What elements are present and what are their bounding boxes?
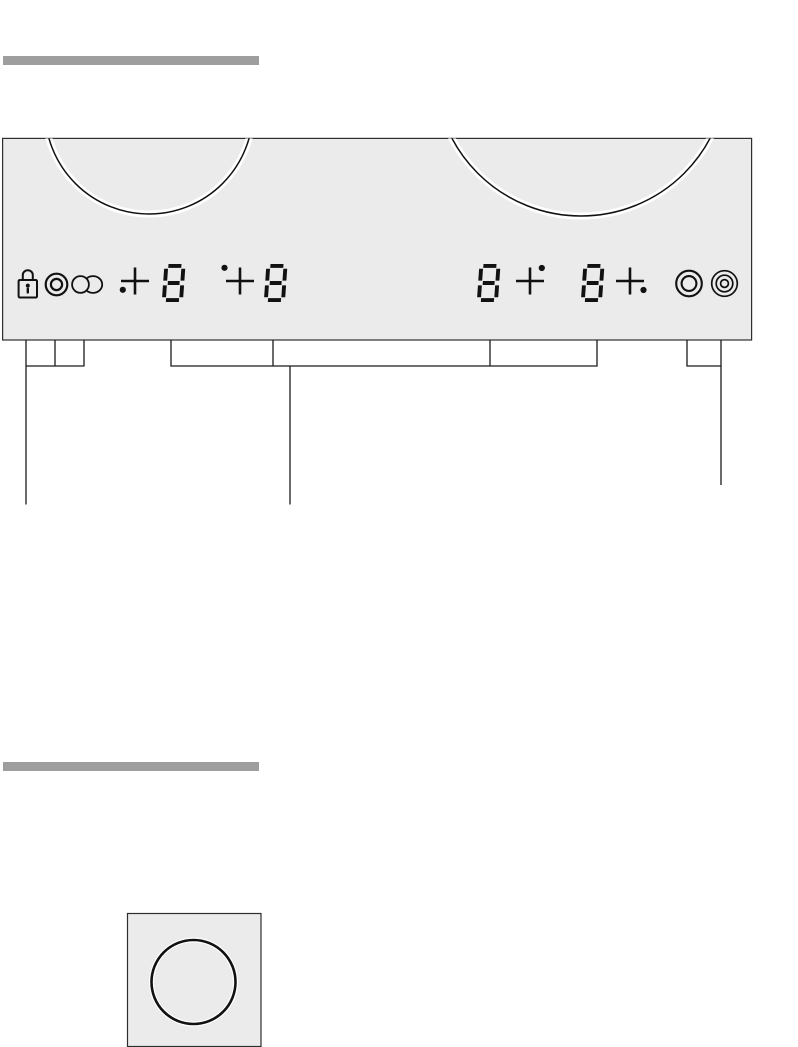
hotplate-symbol bbox=[128, 914, 262, 1047]
callout-line-left-group bbox=[25, 340, 84, 505]
callout-line-display-group bbox=[170, 340, 597, 505]
cooktop-diagram bbox=[0, 0, 798, 1047]
control-panel bbox=[3, 138, 752, 340]
manual-page bbox=[0, 0, 798, 1047]
callout-line-right-group bbox=[686, 340, 721, 485]
